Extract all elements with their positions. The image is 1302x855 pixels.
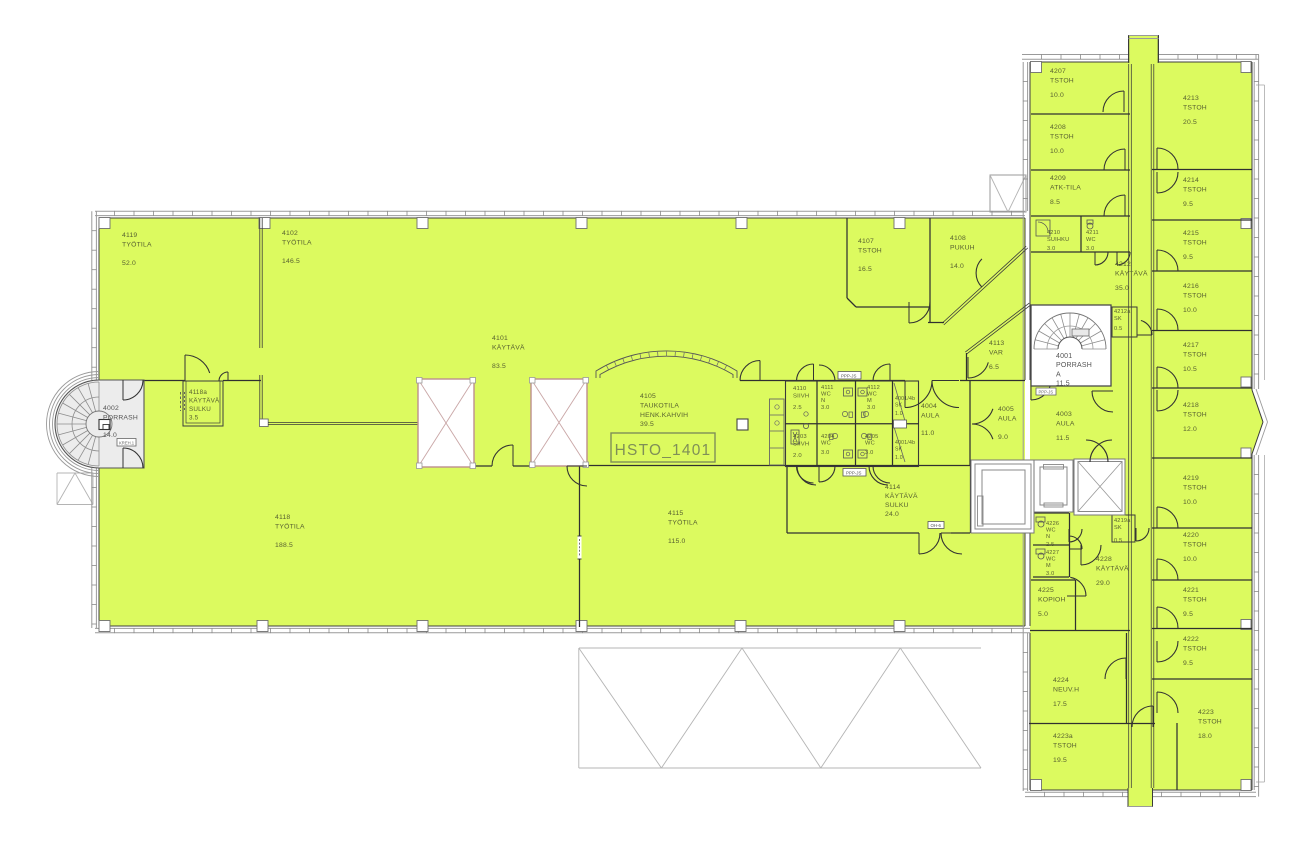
svg-text:3.0: 3.0 (821, 450, 830, 456)
svg-text:4204: 4204 (821, 434, 834, 440)
svg-text:WC: WC (821, 392, 831, 398)
svg-text:HENK.KAHVIH: HENK.KAHVIH (640, 412, 688, 419)
svg-text:4002: 4002 (103, 405, 119, 412)
svg-text:11.0: 11.0 (921, 430, 935, 437)
svg-text:KREH.1: KREH.1 (119, 440, 135, 445)
svg-text:WC: WC (867, 392, 877, 398)
svg-text:4222: 4222 (1183, 636, 1199, 643)
svg-text:146.5: 146.5 (282, 258, 300, 265)
svg-text:14.0: 14.0 (103, 432, 117, 439)
svg-text:4102: 4102 (282, 230, 298, 237)
svg-text:3.5: 3.5 (189, 415, 199, 422)
svg-text:11.5: 11.5 (1056, 381, 1070, 388)
svg-text:4205: 4205 (865, 434, 878, 440)
svg-text:ATK-TILA: ATK-TILA (1050, 185, 1081, 192)
svg-text:4005: 4005 (998, 406, 1014, 413)
svg-text:4218: 4218 (1183, 402, 1199, 409)
svg-text:1.0: 1.0 (895, 455, 903, 461)
svg-text:NEUV.H: NEUV.H (1053, 687, 1079, 694)
svg-text:17.5: 17.5 (1053, 701, 1067, 708)
svg-text:TSTOH: TSTOH (1053, 743, 1077, 750)
svg-text:WC: WC (1046, 556, 1056, 562)
svg-text:OH-6: OH-6 (931, 523, 942, 528)
svg-text:A: A (1056, 371, 1061, 378)
svg-text:PPP-JS: PPP-JS (846, 470, 861, 475)
svg-text:3.0: 3.0 (821, 405, 830, 411)
svg-text:WC: WC (1046, 527, 1056, 533)
svg-text:39.5: 39.5 (640, 421, 654, 428)
svg-text:TYÖTILA: TYÖTILA (668, 519, 698, 527)
svg-text:SULKU: SULKU (189, 406, 211, 413)
svg-text:19.5: 19.5 (1053, 757, 1067, 764)
svg-text:WC: WC (865, 441, 875, 447)
svg-text:TSTOH: TSTOH (1183, 293, 1207, 300)
svg-text:4224: 4224 (1053, 677, 1069, 684)
svg-text:4225: 4225 (1038, 587, 1054, 594)
svg-text:SULKU: SULKU (885, 502, 909, 509)
svg-text:10.0: 10.0 (1050, 92, 1064, 99)
svg-text:TSTOH: TSTOH (1050, 134, 1074, 141)
svg-text:PORRASH: PORRASH (1056, 362, 1092, 369)
svg-text:9.5: 9.5 (1183, 201, 1193, 208)
svg-text:TSTOH: TSTOH (1183, 240, 1207, 247)
svg-text:1.0: 1.0 (895, 411, 903, 417)
svg-text:TSTOH: TSTOH (1183, 542, 1207, 549)
svg-text:4105: 4105 (640, 393, 656, 400)
svg-text:SIIVH: SIIVH (793, 393, 809, 399)
svg-text:SK: SK (895, 446, 903, 452)
svg-text:AULA: AULA (921, 413, 940, 420)
svg-text:5.0: 5.0 (1038, 611, 1048, 618)
svg-text:10.5: 10.5 (1183, 366, 1197, 373)
svg-text:4107: 4107 (858, 238, 874, 245)
svg-text:4228: 4228 (1096, 556, 1112, 563)
svg-text:TSTOH: TSTOH (1183, 485, 1207, 492)
svg-text:TYÖTILA: TYÖTILA (282, 239, 312, 247)
svg-text:9.5: 9.5 (1183, 660, 1193, 667)
svg-text:52.0: 52.0 (122, 260, 136, 267)
svg-text:29.0: 29.0 (1096, 580, 1110, 587)
svg-text:4004: 4004 (921, 403, 937, 410)
svg-text:4115: 4115 (668, 510, 683, 517)
svg-text:35.0: 35.0 (1115, 285, 1129, 292)
svg-text:4118: 4118 (275, 514, 290, 521)
svg-text:4114: 4114 (885, 484, 900, 491)
svg-text:20.5: 20.5 (1183, 119, 1197, 126)
svg-text:3.0: 3.0 (1086, 246, 1094, 252)
svg-text:4221: 4221 (1183, 587, 1199, 594)
svg-text:N: N (1046, 534, 1050, 540)
svg-text:2.5: 2.5 (793, 405, 802, 411)
svg-text:8.5: 8.5 (1050, 199, 1060, 206)
svg-text:PORRASH: PORRASH (103, 415, 138, 422)
svg-text:6.5: 6.5 (989, 364, 999, 371)
svg-text:SIIVH: SIIVH (793, 441, 809, 447)
svg-text:AULA: AULA (1056, 421, 1075, 428)
svg-text:TYÖTILA: TYÖTILA (122, 241, 152, 249)
svg-text:TSTOH: TSTOH (1198, 719, 1222, 726)
svg-text:VAR: VAR (989, 350, 1003, 357)
svg-text:TSTOH: TSTOH (1050, 78, 1074, 85)
svg-text:0.5: 0.5 (1114, 326, 1122, 332)
svg-text:HSTO_1401: HSTO_1401 (615, 442, 712, 459)
svg-text:KOPIOH: KOPIOH (1038, 597, 1066, 604)
svg-text:14.0: 14.0 (950, 263, 964, 270)
svg-text:4216: 4216 (1183, 283, 1199, 290)
svg-text:TSTOH: TSTOH (1183, 646, 1207, 653)
svg-text:188.5: 188.5 (275, 542, 293, 549)
svg-text:4209: 4209 (1050, 175, 1066, 182)
svg-text:4220: 4220 (1183, 532, 1199, 539)
svg-text:TAUKOTILA: TAUKOTILA (640, 402, 679, 409)
svg-text:12.0: 12.0 (1183, 426, 1197, 433)
svg-text:24.0: 24.0 (885, 511, 899, 518)
svg-text:4214: 4214 (1183, 177, 1199, 184)
svg-text:4111: 4111 (821, 385, 834, 391)
svg-text:4113: 4113 (989, 340, 1004, 347)
svg-text:3.0: 3.0 (1047, 246, 1055, 252)
svg-text:0.5: 0.5 (1114, 538, 1122, 544)
svg-text:3.0: 3.0 (865, 450, 874, 456)
svg-text:4217: 4217 (1183, 342, 1199, 349)
svg-text:4215: 4215 (1183, 230, 1199, 237)
svg-text:TYÖTILA: TYÖTILA (275, 523, 305, 531)
svg-text:4211: 4211 (1086, 230, 1099, 236)
svg-text:4226: 4226 (1046, 521, 1059, 527)
svg-text:TSTOH: TSTOH (1183, 187, 1207, 194)
svg-text:KÄYTÄVÄ: KÄYTÄVÄ (1115, 270, 1148, 278)
svg-text:4213: 4213 (1183, 95, 1199, 102)
svg-text:WC: WC (1086, 237, 1096, 243)
svg-text:4001/4b: 4001/4b (895, 396, 915, 402)
svg-text:PPP-JS: PPP-JS (841, 373, 856, 378)
svg-text:4208: 4208 (1050, 124, 1066, 131)
svg-text:115.0: 115.0 (668, 538, 686, 545)
svg-text:4108: 4108 (950, 235, 966, 242)
svg-text:WC: WC (821, 441, 831, 447)
svg-text:4119: 4119 (122, 232, 137, 239)
svg-text:4210: 4210 (1047, 230, 1060, 236)
svg-text:TSTOH: TSTOH (1183, 352, 1207, 359)
svg-text:M: M (867, 398, 872, 404)
svg-text:AULA: AULA (998, 416, 1017, 423)
svg-text:10.0: 10.0 (1183, 499, 1197, 506)
svg-text:9.5: 9.5 (1183, 611, 1193, 618)
svg-text:SK: SK (1114, 525, 1122, 531)
svg-text:KÄYTÄVÄ: KÄYTÄVÄ (1096, 565, 1129, 573)
svg-text:16.5: 16.5 (858, 266, 872, 273)
svg-text:2.5: 2.5 (1046, 542, 1054, 548)
svg-text:SK: SK (895, 402, 903, 408)
svg-text:4001/4b: 4001/4b (895, 440, 915, 446)
svg-text:PUKUH: PUKUH (950, 245, 975, 252)
svg-text:TSTOH: TSTOH (1183, 597, 1207, 604)
svg-text:KÄYTÄVÄ: KÄYTÄVÄ (885, 492, 918, 500)
svg-text:4223a: 4223a (1053, 733, 1073, 740)
svg-text:18.0: 18.0 (1198, 733, 1212, 740)
svg-text:4001: 4001 (1056, 353, 1072, 360)
svg-text:N: N (821, 398, 825, 404)
svg-text:4227: 4227 (1046, 550, 1059, 556)
svg-text:4219a: 4219a (1114, 518, 1131, 524)
svg-text:4110: 4110 (793, 386, 807, 392)
svg-text:4219: 4219 (1183, 475, 1199, 482)
svg-text:10.0: 10.0 (1183, 307, 1197, 314)
svg-text:10.0: 10.0 (1183, 556, 1197, 563)
svg-text:9.5: 9.5 (1183, 254, 1193, 261)
svg-text:KÄYTÄVÄ: KÄYTÄVÄ (189, 397, 220, 405)
svg-text:3.0: 3.0 (867, 405, 876, 411)
svg-text:4003: 4003 (1056, 411, 1072, 418)
svg-text:3.0: 3.0 (1046, 571, 1054, 577)
svg-text:4118a: 4118a (189, 389, 207, 396)
svg-text:4207: 4207 (1050, 68, 1066, 75)
svg-text:TSTOH: TSTOH (1183, 412, 1207, 419)
svg-text:M: M (1046, 563, 1051, 569)
svg-text:9.0: 9.0 (998, 434, 1008, 441)
svg-text:SK: SK (1114, 316, 1122, 322)
svg-text:TSTOH: TSTOH (858, 248, 882, 255)
svg-text:83.5: 83.5 (492, 363, 506, 370)
svg-text:4212a: 4212a (1114, 309, 1131, 315)
svg-text:TSTOH: TSTOH (1183, 105, 1207, 112)
svg-text:11.5: 11.5 (1056, 435, 1070, 442)
svg-text:KÄYTÄVÄ: KÄYTÄVÄ (492, 344, 525, 352)
svg-text:2.0: 2.0 (793, 453, 802, 459)
svg-text:10.0: 10.0 (1050, 148, 1064, 155)
svg-text:4212: 4212 (1115, 261, 1131, 268)
svg-text:4101: 4101 (492, 335, 508, 342)
svg-text:4112: 4112 (867, 385, 880, 391)
svg-text:PPP-JS: PPP-JS (1039, 390, 1054, 395)
svg-text:4223: 4223 (1198, 709, 1214, 716)
svg-text:SUIHKU: SUIHKU (1047, 237, 1069, 243)
svg-text:4203: 4203 (793, 434, 807, 440)
